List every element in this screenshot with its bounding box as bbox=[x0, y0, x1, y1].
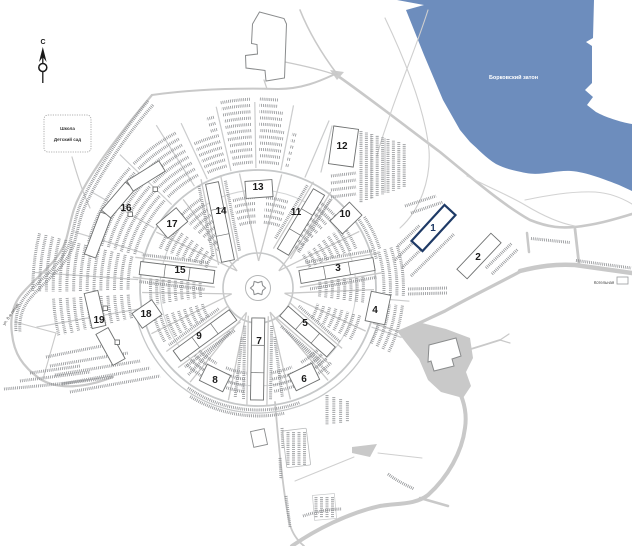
svg-text:Школа: Школа bbox=[60, 126, 75, 131]
svg-text:5: 5 bbox=[302, 318, 308, 329]
svg-text:С: С bbox=[40, 39, 45, 46]
svg-text:19: 19 bbox=[93, 315, 105, 326]
svg-text:8: 8 bbox=[212, 375, 218, 386]
svg-text:11: 11 bbox=[291, 207, 302, 218]
svg-text:13: 13 bbox=[252, 182, 264, 193]
svg-text:18: 18 bbox=[140, 309, 152, 320]
svg-text:16: 16 bbox=[120, 203, 132, 214]
svg-text:17: 17 bbox=[166, 219, 178, 230]
svg-text:4: 4 bbox=[372, 305, 378, 316]
svg-text:Борковский затон: Борковский затон bbox=[489, 74, 538, 81]
svg-text:2: 2 bbox=[475, 252, 481, 263]
svg-text:Детский сад: Детский сад bbox=[54, 136, 81, 142]
svg-text:6: 6 bbox=[301, 374, 307, 385]
svg-text:1: 1 bbox=[430, 223, 436, 234]
svg-text:12: 12 bbox=[336, 141, 348, 152]
svg-text:Котельная: Котельная bbox=[594, 280, 614, 285]
svg-text:9: 9 bbox=[196, 331, 202, 342]
svg-text:14: 14 bbox=[215, 206, 227, 217]
svg-text:7: 7 bbox=[256, 336, 262, 347]
svg-text:10: 10 bbox=[339, 209, 351, 220]
svg-text:3: 3 bbox=[335, 263, 341, 274]
svg-text:15: 15 bbox=[174, 265, 186, 276]
